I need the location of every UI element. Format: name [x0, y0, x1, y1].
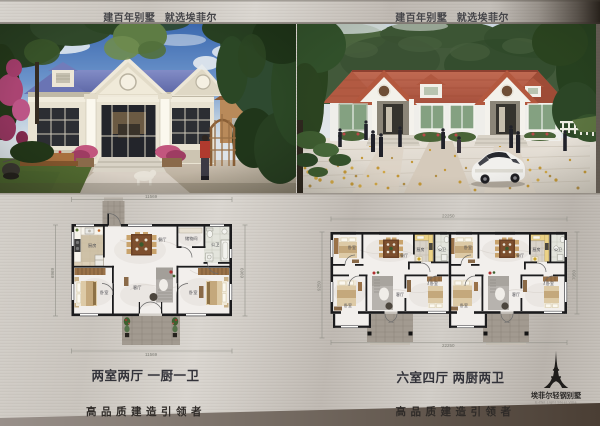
- svg-text:11569: 11569: [145, 352, 158, 357]
- svg-text:6969: 6969: [50, 267, 55, 278]
- svg-text:6969: 6969: [240, 267, 245, 278]
- svg-text:7050: 7050: [572, 269, 577, 280]
- svg-text:餐厅: 餐厅: [400, 252, 408, 258]
- svg-text:公卫: 公卫: [438, 247, 446, 252]
- svg-text:客厅: 客厅: [396, 291, 404, 297]
- svg-text:储物间: 储物间: [185, 235, 198, 242]
- svg-text:22250: 22250: [442, 343, 455, 348]
- svg-text:卧室: 卧室: [189, 289, 197, 296]
- svg-text:22250: 22250: [442, 214, 455, 219]
- svg-text:卧室: 卧室: [348, 244, 356, 250]
- svg-text:埃菲尔轻钢别墅: 埃菲尔轻钢别墅: [531, 391, 582, 400]
- svg-text:客厅: 客厅: [133, 284, 141, 291]
- svg-text:厨房: 厨房: [417, 246, 425, 252]
- svg-text:11569: 11569: [145, 194, 158, 199]
- svg-text:卧室: 卧室: [430, 280, 438, 286]
- svg-text:公卫: 公卫: [211, 242, 219, 247]
- svg-text:卧室: 卧室: [344, 302, 352, 308]
- svg-text:厨房: 厨房: [88, 242, 96, 249]
- svg-text:餐厅: 餐厅: [158, 236, 166, 243]
- svg-text:卧室: 卧室: [100, 289, 108, 296]
- svg-text:9250: 9250: [317, 280, 322, 291]
